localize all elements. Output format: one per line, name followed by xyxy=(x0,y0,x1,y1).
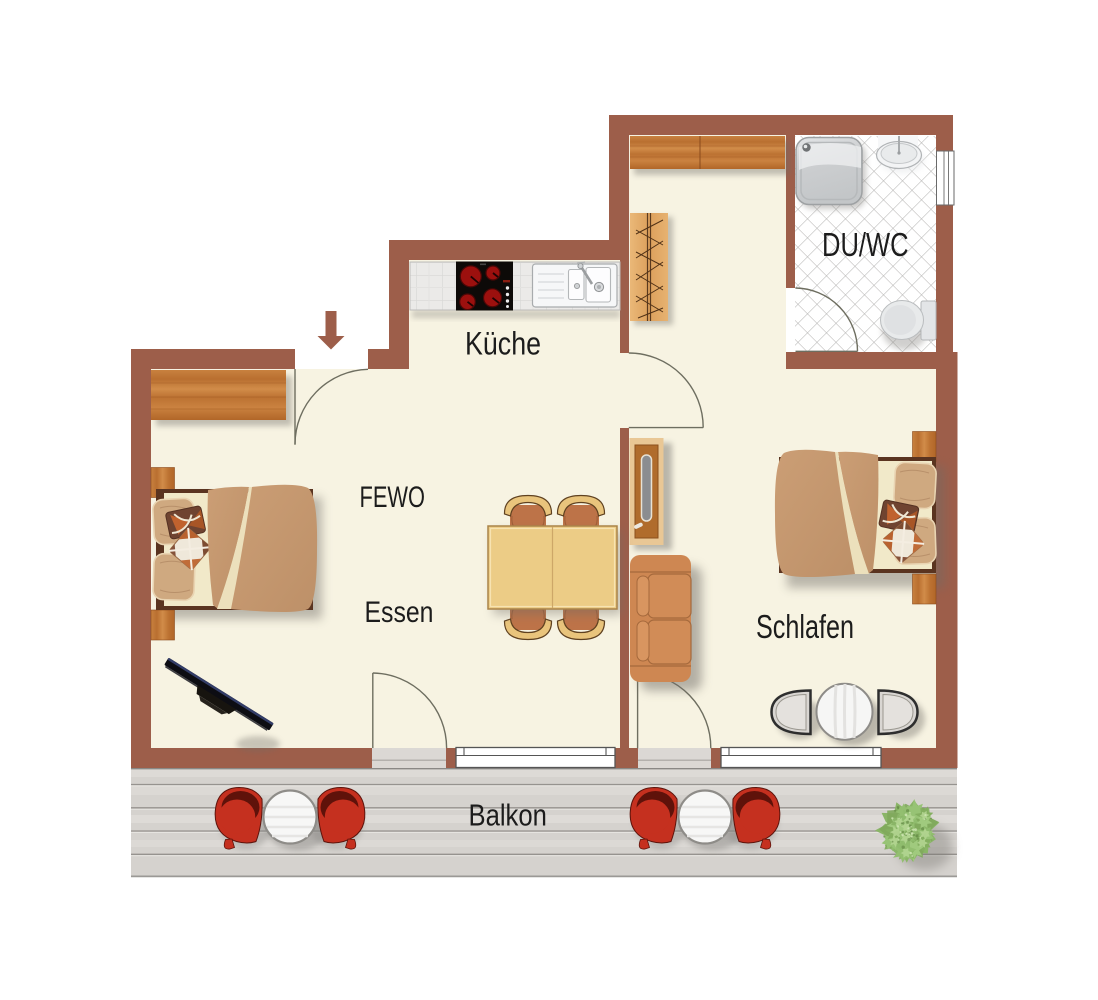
svg-text:FEWO: FEWO xyxy=(360,480,425,514)
svg-text:DU/WC: DU/WC xyxy=(822,227,909,264)
svg-text:Küche: Küche xyxy=(465,326,541,362)
svg-text:Schlafen: Schlafen xyxy=(756,609,854,646)
svg-text:Essen: Essen xyxy=(365,595,434,629)
svg-text:Balkon: Balkon xyxy=(469,798,547,833)
